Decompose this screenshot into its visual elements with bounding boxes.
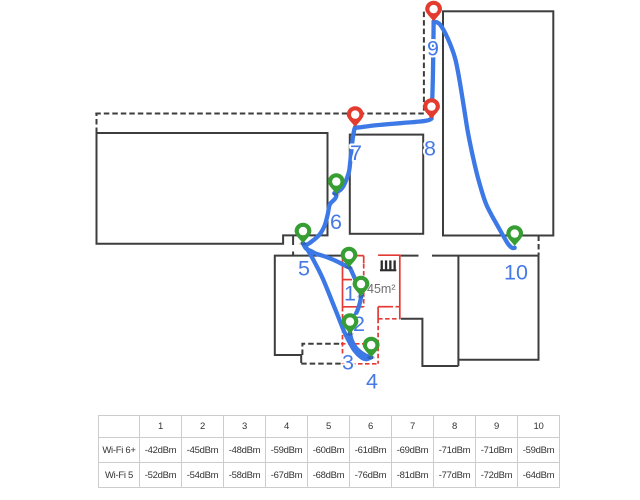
svg-text:10: 10 <box>504 260 528 284</box>
svg-text:6: 6 <box>330 210 342 234</box>
svg-text:45m²: 45m² <box>367 282 395 296</box>
svg-text:3: 3 <box>342 350 354 374</box>
svg-text:4: 4 <box>366 369 378 393</box>
svg-text:8: 8 <box>424 136 436 160</box>
svg-text:5: 5 <box>298 256 310 280</box>
svg-text:9: 9 <box>427 36 439 60</box>
svg-text:7: 7 <box>350 141 362 165</box>
